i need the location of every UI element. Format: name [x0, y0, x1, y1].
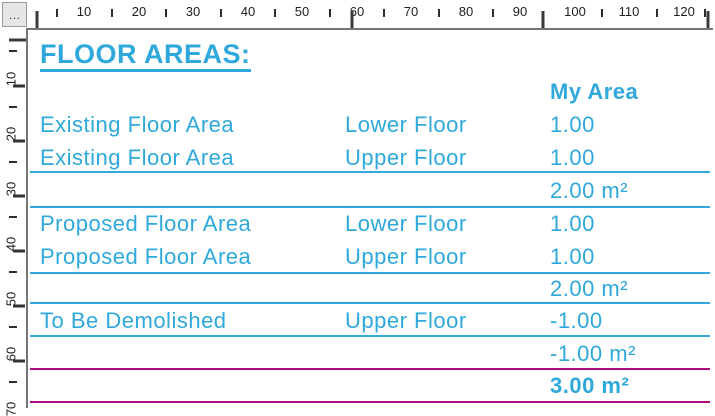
row-name: Proposed Floor Area	[30, 242, 345, 272]
ruler-unit-label: 70	[4, 402, 19, 416]
ruler-unit-label: 20	[132, 4, 146, 19]
subtotal-row: -1.00 m²	[30, 339, 710, 369]
row-name	[30, 176, 345, 206]
subtotal-value: 2.00 m²	[550, 176, 710, 206]
ruler-block-edge-tick	[9, 39, 27, 42]
ruler-minor-tick	[383, 9, 385, 17]
subtotal-rule	[30, 302, 710, 304]
ruler-unit-label: 40	[241, 4, 255, 19]
ruler-minor-tick	[9, 381, 17, 383]
ruler-block-edge-tick	[351, 11, 354, 28]
row-value: 1.00	[550, 242, 710, 272]
ruler-minor-tick	[9, 106, 17, 108]
ruler-unit-label: 30	[186, 4, 200, 19]
layout-view: … 102030405060708090100110120 1020304050…	[0, 0, 715, 410]
row-floor	[345, 339, 550, 369]
row-floor	[345, 274, 550, 304]
page-title: FLOOR AREAS:	[40, 40, 251, 72]
grand-total-value: 3.00 m²	[550, 371, 710, 401]
grand-total-rule	[30, 401, 710, 403]
table-row: Existing Floor Area Lower Floor 1.00	[30, 110, 710, 140]
row-name	[30, 339, 345, 369]
row-floor	[345, 371, 550, 401]
ruler-unit-label: 120	[673, 4, 695, 19]
ruler-minor-tick	[165, 9, 167, 17]
ruler-options-button[interactable]: …	[2, 2, 27, 27]
ruler-label-tick	[13, 195, 25, 198]
subtotal-value: -1.00 m²	[550, 339, 710, 369]
ruler-minor-tick	[56, 9, 58, 17]
ruler-label-tick	[13, 85, 25, 88]
ruler-minor-tick	[329, 9, 331, 17]
subtotal-rule	[30, 206, 710, 208]
ruler-block-edge-tick	[36, 11, 39, 28]
ruler-minor-tick	[492, 9, 494, 17]
row-name: Proposed Floor Area	[30, 209, 345, 239]
table-row: Proposed Floor Area Lower Floor 1.00	[30, 209, 710, 239]
ruler-minor-tick	[601, 9, 603, 17]
row-name: Existing Floor Area	[30, 143, 345, 173]
ruler-label-tick	[13, 305, 25, 308]
subtotal-row: 2.00 m²	[30, 274, 710, 304]
subtotal-rule	[30, 335, 710, 337]
table-row: Proposed Floor Area Upper Floor 1.00	[30, 242, 710, 272]
ruler-label-tick	[13, 250, 25, 253]
ruler-minor-tick	[9, 326, 17, 328]
column-header-my-area: My Area	[550, 79, 638, 105]
grand-total-row: 3.00 m²	[30, 371, 710, 401]
row-floor: Upper Floor	[345, 306, 550, 336]
row-name	[30, 274, 345, 304]
ruler-minor-tick	[111, 9, 113, 17]
ruler-minor-tick	[9, 216, 17, 218]
row-floor: Upper Floor	[345, 242, 550, 272]
row-value: 1.00	[550, 110, 710, 140]
ruler-unit-label: 110	[619, 4, 640, 19]
row-name: To Be Demolished	[30, 306, 345, 336]
ruler-unit-label: 100	[564, 4, 586, 19]
ruler-minor-tick	[9, 50, 17, 52]
row-floor: Lower Floor	[345, 110, 550, 140]
row-name	[30, 371, 345, 401]
vertical-ruler[interactable]: 10203040506070	[0, 28, 28, 410]
ruler-minor-tick	[9, 161, 17, 163]
subtotal-value: 2.00 m²	[550, 274, 710, 304]
ruler-minor-tick	[274, 9, 276, 17]
ruler-minor-tick	[438, 9, 440, 17]
ruler-block-edge-tick	[707, 11, 710, 28]
row-floor: Upper Floor	[345, 143, 550, 173]
ruler-block-edge-tick	[542, 11, 545, 28]
ruler-unit-label: 10	[77, 4, 91, 19]
row-value: -1.00	[550, 306, 710, 336]
table-row: Existing Floor Area Upper Floor 1.00	[30, 143, 710, 173]
ruler-unit-label: 90	[513, 4, 527, 19]
row-value: 1.00	[550, 209, 710, 239]
ruler-minor-tick	[220, 9, 222, 17]
table-row: To Be Demolished Upper Floor -1.00	[30, 306, 710, 336]
ruler-label-tick	[13, 360, 25, 363]
row-floor	[345, 176, 550, 206]
ruler-minor-tick	[9, 271, 17, 273]
row-name: Existing Floor Area	[30, 110, 345, 140]
row-value: 1.00	[550, 143, 710, 173]
ruler-minor-tick	[656, 9, 658, 17]
row-floor: Lower Floor	[345, 209, 550, 239]
horizontal-ruler[interactable]: 102030405060708090100110120	[28, 0, 715, 28]
subtotal-row: 2.00 m²	[30, 176, 710, 206]
ruler-unit-label: 50	[295, 4, 309, 19]
grand-total-rule	[30, 368, 710, 370]
ruler-unit-label: 80	[459, 4, 473, 19]
subtotal-rule	[30, 171, 710, 173]
ruler-label-tick	[13, 140, 25, 143]
ruler-unit-label: 70	[404, 4, 418, 19]
